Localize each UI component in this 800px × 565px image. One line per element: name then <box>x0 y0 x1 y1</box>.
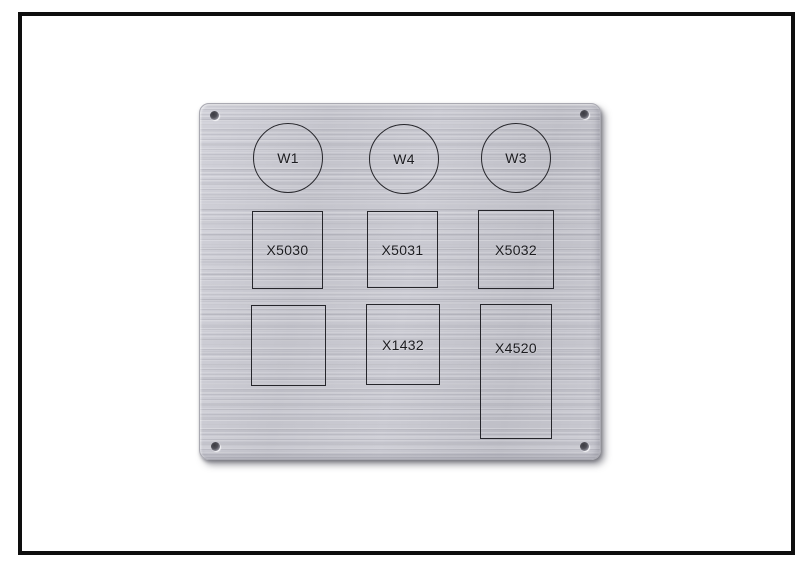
brushed-metal-panel: W1 W4 W3 X5030 X5031 X5032 X1432 X4520 <box>199 103 601 460</box>
circle-cutout-w4: W4 <box>369 124 439 194</box>
rect-cutout-x5032: X5032 <box>478 210 554 289</box>
cutout-label: X5032 <box>495 242 537 258</box>
mounting-hole-top-right <box>580 110 589 119</box>
circle-cutout-w3: W3 <box>481 123 551 193</box>
circle-cutout-w1: W1 <box>253 123 323 193</box>
rect-cutout-x1432: X1432 <box>366 304 440 385</box>
mounting-hole-bottom-left <box>211 442 220 451</box>
rect-cutout-x5030: X5030 <box>252 211 323 289</box>
rect-cutout-x4520: X4520 <box>480 304 552 439</box>
cutout-label: X5031 <box>382 242 424 258</box>
cutout-label: X5030 <box>267 242 309 258</box>
rect-cutout-x5031: X5031 <box>367 211 438 288</box>
product-photo-stage: W1 W4 W3 X5030 X5031 X5032 X1432 X4520 <box>0 0 800 565</box>
cutout-label: X4520 <box>495 340 537 356</box>
mounting-hole-bottom-right <box>580 442 589 451</box>
circle-label: W4 <box>393 151 415 167</box>
rect-cutout-blank <box>251 305 326 386</box>
circle-label: W3 <box>505 150 527 166</box>
cutout-label: X1432 <box>382 337 424 353</box>
mounting-hole-top-left <box>210 111 219 120</box>
circle-label: W1 <box>277 150 299 166</box>
